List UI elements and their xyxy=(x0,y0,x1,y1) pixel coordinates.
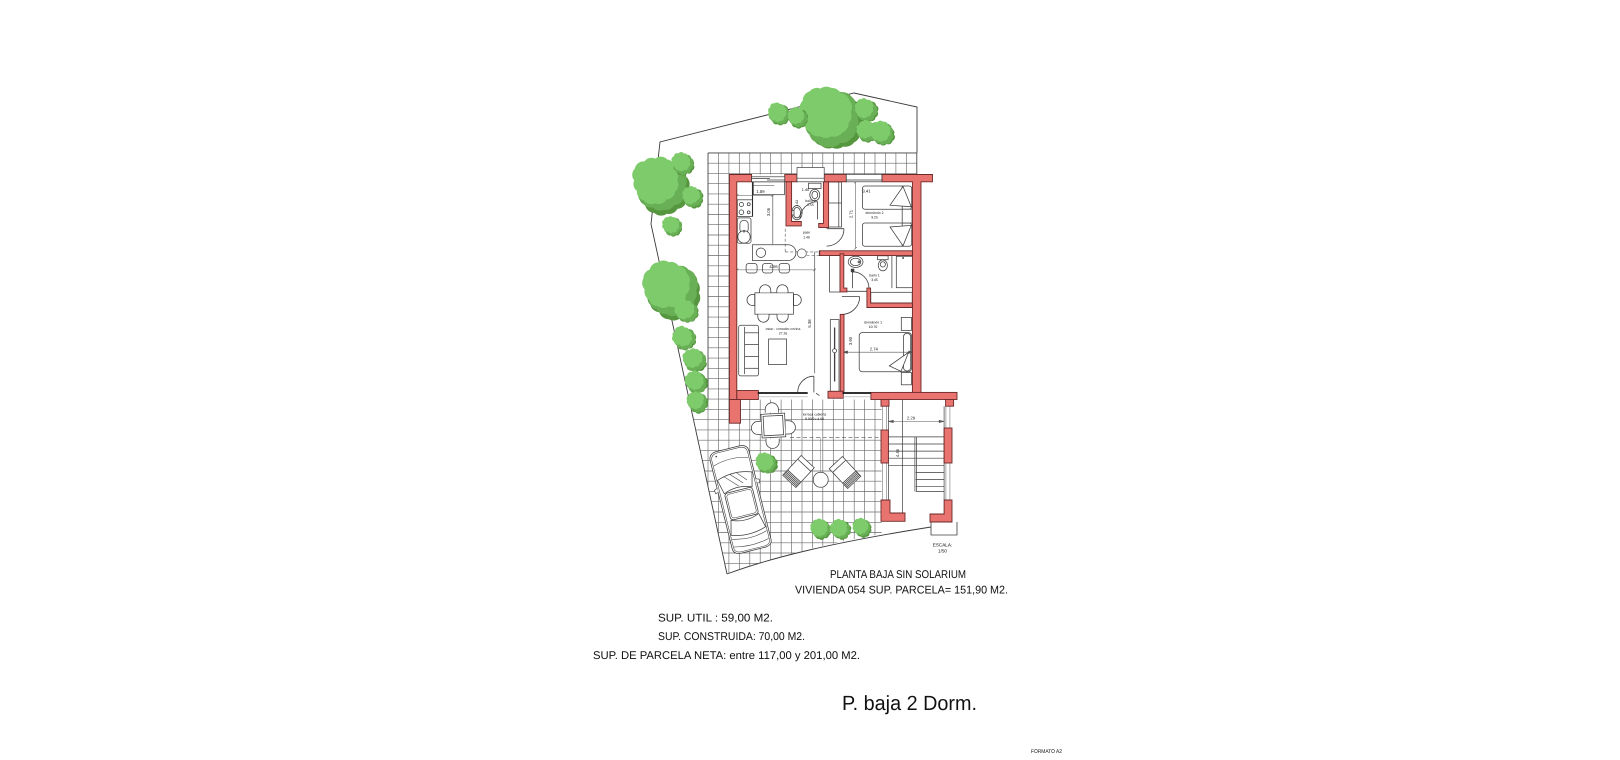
svg-text:ESCALA:: ESCALA: xyxy=(933,543,952,548)
svg-text:3.41: 3.41 xyxy=(862,189,871,194)
svg-text:FORMATO A2: FORMATO A2 xyxy=(1031,749,1062,755)
svg-text:2.29: 2.29 xyxy=(907,415,916,420)
svg-text:1.40: 1.40 xyxy=(802,188,809,192)
svg-text:5.38: 5.38 xyxy=(807,319,812,328)
svg-text:dormitorio 2: dormitorio 2 xyxy=(866,211,884,215)
svg-text:SUP. CONSTRUIDA: 70,00 M2.: SUP. CONSTRUIDA: 70,00 M2. xyxy=(658,631,805,643)
svg-text:10.70: 10.70 xyxy=(869,325,878,329)
svg-text:1.40: 1.40 xyxy=(803,236,810,240)
svg-text:P. baja 2 Dorm.: P. baja 2 Dorm. xyxy=(842,692,977,715)
svg-text:estar - comedor-cocina: estar - comedor-cocina xyxy=(766,327,801,331)
svg-text:4.46: 4.46 xyxy=(895,448,900,457)
svg-text:SUP. UTIL : 59,00 M2.: SUP. UTIL : 59,00 M2. xyxy=(658,613,773,625)
svg-text:PLANTA BAJA SIN SOLARIUM: PLANTA BAJA SIN SOLARIUM xyxy=(830,569,966,581)
svg-text:3.45: 3.45 xyxy=(871,278,878,282)
svg-text:3.90: 3.90 xyxy=(848,336,853,345)
svg-text:8.00/2= 4.00: 8.00/2= 4.00 xyxy=(805,417,824,421)
svg-text:SUP. DE PARCELA NETA: entre 11: SUP. DE PARCELA NETA: entre 117,00 y 201… xyxy=(593,650,860,662)
svg-text:2.55: 2.55 xyxy=(807,203,814,207)
svg-text:VIVIENDA 054 SUP. PARCELA= 151: VIVIENDA 054 SUP. PARCELA= 151,90 M2. xyxy=(795,585,1008,597)
svg-text:paso: paso xyxy=(803,230,810,234)
svg-text:baño 1: baño 1 xyxy=(869,273,879,277)
svg-text:2.74: 2.74 xyxy=(870,347,879,352)
svg-text:1.62: 1.62 xyxy=(795,200,799,207)
svg-text:1/50: 1/50 xyxy=(938,548,947,553)
svg-text:terraza cubierta: terraza cubierta xyxy=(803,412,827,416)
svg-text:1.89: 1.89 xyxy=(756,189,765,194)
svg-text:9.25: 9.25 xyxy=(871,216,878,220)
svg-text:2.71: 2.71 xyxy=(848,209,853,218)
svg-text:27.26: 27.26 xyxy=(779,332,788,336)
svg-text:4.06: 4.06 xyxy=(769,264,778,269)
svg-text:3.06: 3.06 xyxy=(766,207,771,216)
svg-text:dormitorio 1: dormitorio 1 xyxy=(864,321,882,325)
